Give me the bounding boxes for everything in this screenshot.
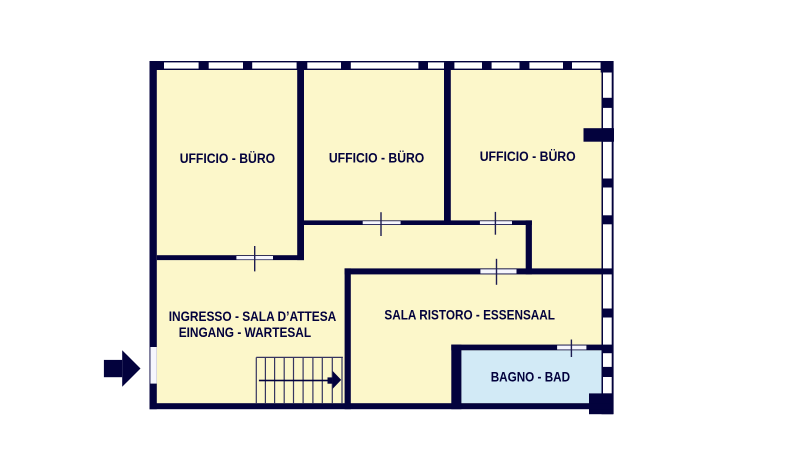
svg-text:SALA RISTORO - ESSENSAAL: SALA RISTORO - ESSENSAAL [384, 308, 555, 323]
svg-text:UFFICIO - BÜRO: UFFICIO - BÜRO [480, 149, 576, 164]
svg-text:UFFICIO - BÜRO: UFFICIO - BÜRO [180, 151, 275, 166]
svg-text:UFFICIO - BÜRO: UFFICIO - BÜRO [329, 151, 424, 166]
svg-text:BAGNO - BAD: BAGNO - BAD [491, 369, 571, 384]
svg-text:EINGANG - WARTESAL: EINGANG - WARTESAL [179, 325, 311, 340]
svg-text:INGRESSO - SALA D’ATTESA: INGRESSO - SALA D’ATTESA [169, 309, 337, 324]
